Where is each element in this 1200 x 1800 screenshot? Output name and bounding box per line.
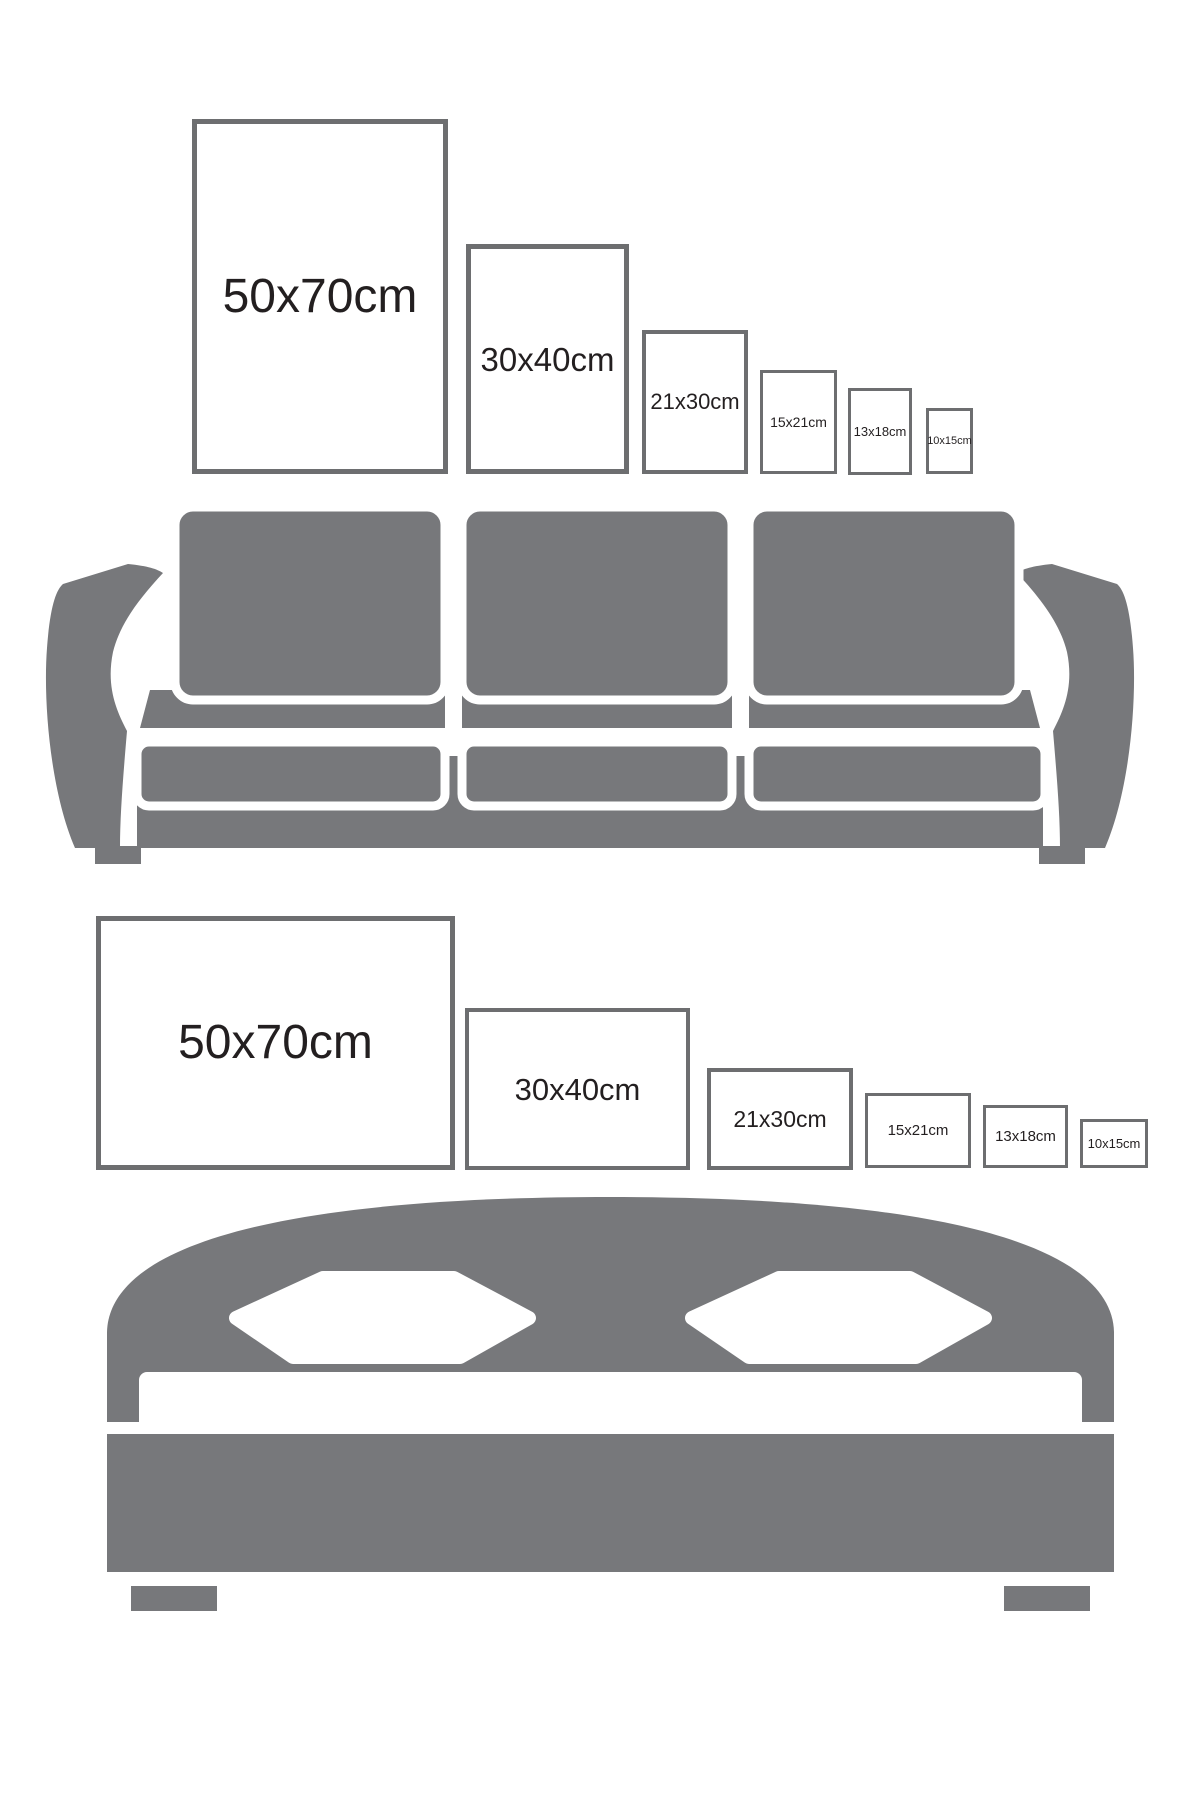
sofa-back-cushion-2	[462, 507, 732, 700]
sofa-right-leg	[1039, 846, 1085, 864]
bed-icon	[107, 1197, 1114, 1611]
frame-15x21-landscape: 15x21cm	[865, 1093, 971, 1168]
frame-size-label: 21x30cm	[650, 391, 739, 413]
frame-size-label: 30x40cm	[481, 343, 615, 376]
frame-size-label: 10x15cm	[927, 436, 972, 447]
sofa-back-cushion-3	[749, 507, 1019, 700]
sofa-seat-cushion-3	[749, 742, 1045, 806]
frame-size-label: 13x18cm	[854, 425, 907, 438]
sofa-deck-gap-right	[732, 686, 749, 730]
frame-size-label: 15x21cm	[770, 415, 827, 429]
frame-10x15-portrait: 10x15cm	[926, 408, 973, 474]
frame-size-label: 15x21cm	[888, 1123, 949, 1138]
bed-base	[107, 1434, 1114, 1572]
frame-13x18-landscape: 13x18cm	[983, 1105, 1068, 1168]
bed-right-foot	[1004, 1586, 1090, 1611]
sofa-deck-gap-left	[445, 686, 462, 730]
frame-size-label: 10x15cm	[1088, 1137, 1141, 1150]
frame-30x40-landscape: 30x40cm	[465, 1008, 690, 1170]
frame-21x30-landscape: 21x30cm	[707, 1068, 853, 1170]
frame-21x30-portrait: 21x30cm	[642, 330, 748, 474]
poster-size-guide: 50x70cm 30x40cm 21x30cm 15x21cm 13x18cm …	[0, 0, 1200, 1800]
frame-size-label: 13x18cm	[995, 1129, 1056, 1144]
frame-50x70-portrait: 50x70cm	[192, 119, 448, 474]
sofa-seat-cushion-1	[137, 742, 445, 806]
frame-10x15-landscape: 10x15cm	[1080, 1119, 1148, 1168]
bed-left-foot	[131, 1586, 217, 1611]
frame-size-label: 50x70cm	[178, 1019, 373, 1067]
frame-15x21-portrait: 15x21cm	[760, 370, 837, 474]
frame-50x70-landscape: 50x70cm	[96, 916, 455, 1170]
frame-size-label: 21x30cm	[733, 1108, 826, 1131]
frame-13x18-portrait: 13x18cm	[848, 388, 912, 475]
frame-size-label: 30x40cm	[515, 1074, 641, 1105]
frame-30x40-portrait: 30x40cm	[466, 244, 629, 474]
sofa-icon	[46, 507, 1134, 864]
sofa-seat-cushion-2	[462, 742, 732, 806]
frame-size-label: 50x70cm	[223, 273, 418, 321]
sofa-back-cushion-1	[175, 507, 445, 700]
sofa-left-leg	[95, 846, 141, 864]
bed-mattress-strip	[139, 1372, 1082, 1434]
